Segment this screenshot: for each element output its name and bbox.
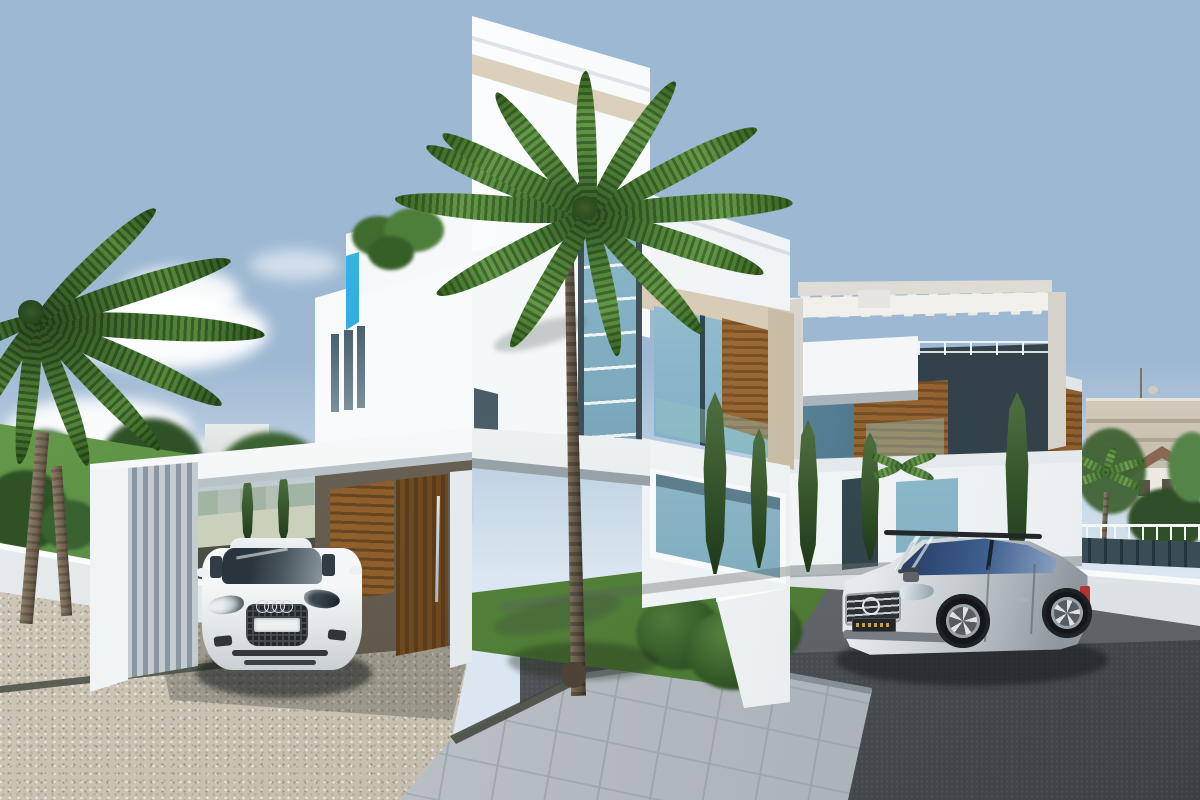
- slit-window: [357, 326, 365, 408]
- lower-intake-slot: [244, 660, 316, 665]
- palm-trunk-base: [561, 662, 586, 688]
- side-mirror: [197, 568, 210, 577]
- slit-window: [331, 334, 339, 412]
- door-handle: [1014, 598, 1029, 602]
- audi-rings-icon: [280, 600, 293, 613]
- side-window: [322, 554, 335, 576]
- fog-intake: [328, 629, 347, 641]
- mercedes-star-icon: [862, 597, 880, 615]
- side-mirror: [903, 572, 919, 582]
- rear-wheel-rim: [1051, 597, 1083, 629]
- fog-intake: [214, 635, 233, 647]
- side-window: [210, 556, 222, 578]
- license-plate-text: [856, 623, 892, 627]
- cloud: [250, 250, 340, 280]
- palm-crown-core: [18, 300, 44, 324]
- side-mirror: [349, 566, 362, 575]
- windshield: [222, 548, 322, 584]
- terrace-plants: [368, 236, 414, 270]
- front-wheel-rim: [946, 604, 980, 638]
- scene: [0, 0, 1200, 800]
- pergola-roof-block: [858, 290, 890, 308]
- antenna-mast: [1140, 368, 1142, 402]
- license-plate: [254, 618, 300, 632]
- lower-intake-slot: [232, 650, 328, 656]
- balcony-railing: [918, 341, 1050, 355]
- satellite-dish: [1148, 386, 1158, 394]
- slit-window: [344, 330, 353, 410]
- palm-crown-core: [572, 196, 598, 220]
